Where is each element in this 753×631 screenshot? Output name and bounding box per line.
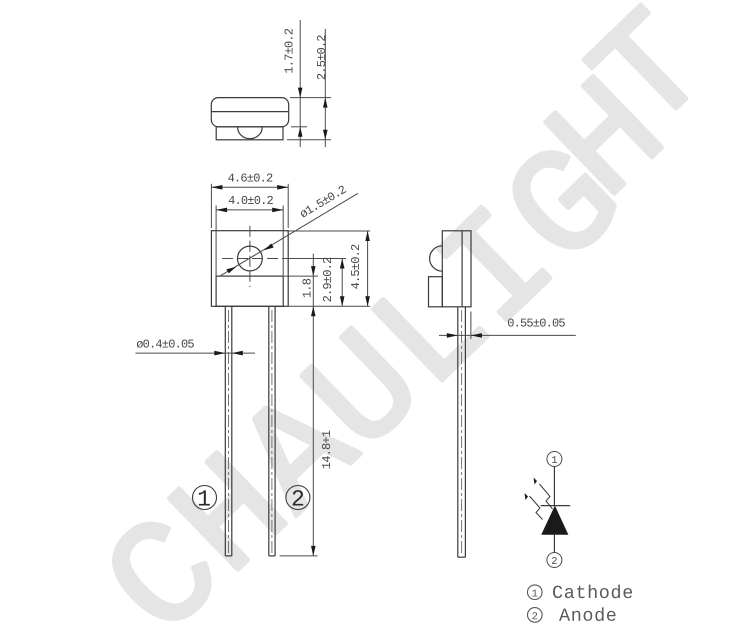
svg-text:ø1.5±0.2: ø1.5±0.2 [297, 183, 349, 222]
svg-text:2.5±0.2: 2.5±0.2 [315, 35, 329, 80]
svg-text:4.5±0.2: 4.5±0.2 [349, 244, 363, 289]
svg-text:2: 2 [291, 486, 305, 512]
svg-text:Cathode: Cathode [552, 583, 634, 604]
svg-text:1: 1 [551, 455, 557, 467]
svg-text:Anode: Anode [559, 606, 618, 627]
svg-text:2.9±0.2: 2.9±0.2 [321, 257, 335, 302]
svg-text:4.6±0.2: 4.6±0.2 [228, 171, 273, 185]
svg-text:1: 1 [197, 486, 211, 512]
svg-text:0.55±0.05: 0.55±0.05 [507, 316, 565, 330]
svg-text:ø0.4±0.05: ø0.4±0.05 [136, 337, 194, 351]
svg-text:2: 2 [532, 611, 538, 623]
svg-text:14.8+1: 14.8+1 [320, 430, 334, 469]
svg-text:1.7±0.2: 1.7±0.2 [283, 28, 297, 73]
svg-text:1.8: 1.8 [301, 278, 315, 298]
svg-text:2: 2 [551, 556, 557, 568]
svg-text:1: 1 [532, 588, 538, 600]
svg-text:4.0±0.2: 4.0±0.2 [228, 194, 273, 208]
